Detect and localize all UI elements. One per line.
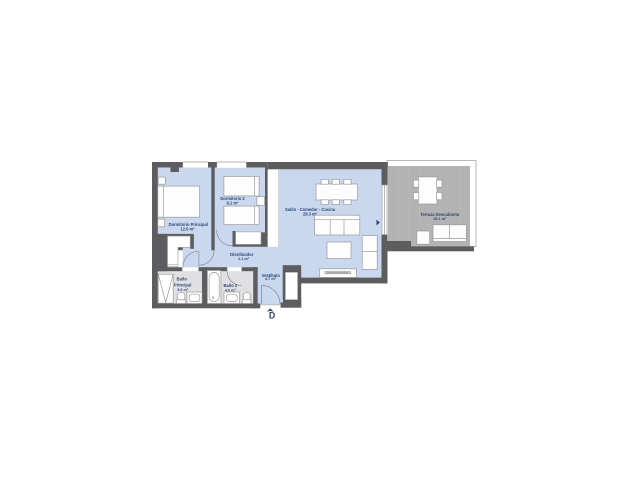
svg-text:4.7 m²: 4.7 m²	[265, 277, 277, 281]
svg-text:15.1 m²: 15.1 m²	[433, 217, 447, 221]
svg-text:D: D	[269, 311, 275, 321]
svg-text:Principal: Principal	[174, 283, 191, 288]
svg-text:Baño: Baño	[177, 276, 188, 281]
svg-text:12.0 m²: 12.0 m²	[180, 227, 195, 232]
svg-text:28.3 m²: 28.3 m²	[303, 212, 318, 217]
svg-text:3.6 m²: 3.6 m²	[177, 288, 189, 292]
svg-text:2.1 m²: 2.1 m²	[238, 257, 250, 261]
svg-text:4.0 m²: 4.0 m²	[225, 289, 237, 293]
svg-text:Baño 2: Baño 2	[223, 283, 237, 288]
svg-text:9.1 m²: 9.1 m²	[227, 200, 239, 205]
